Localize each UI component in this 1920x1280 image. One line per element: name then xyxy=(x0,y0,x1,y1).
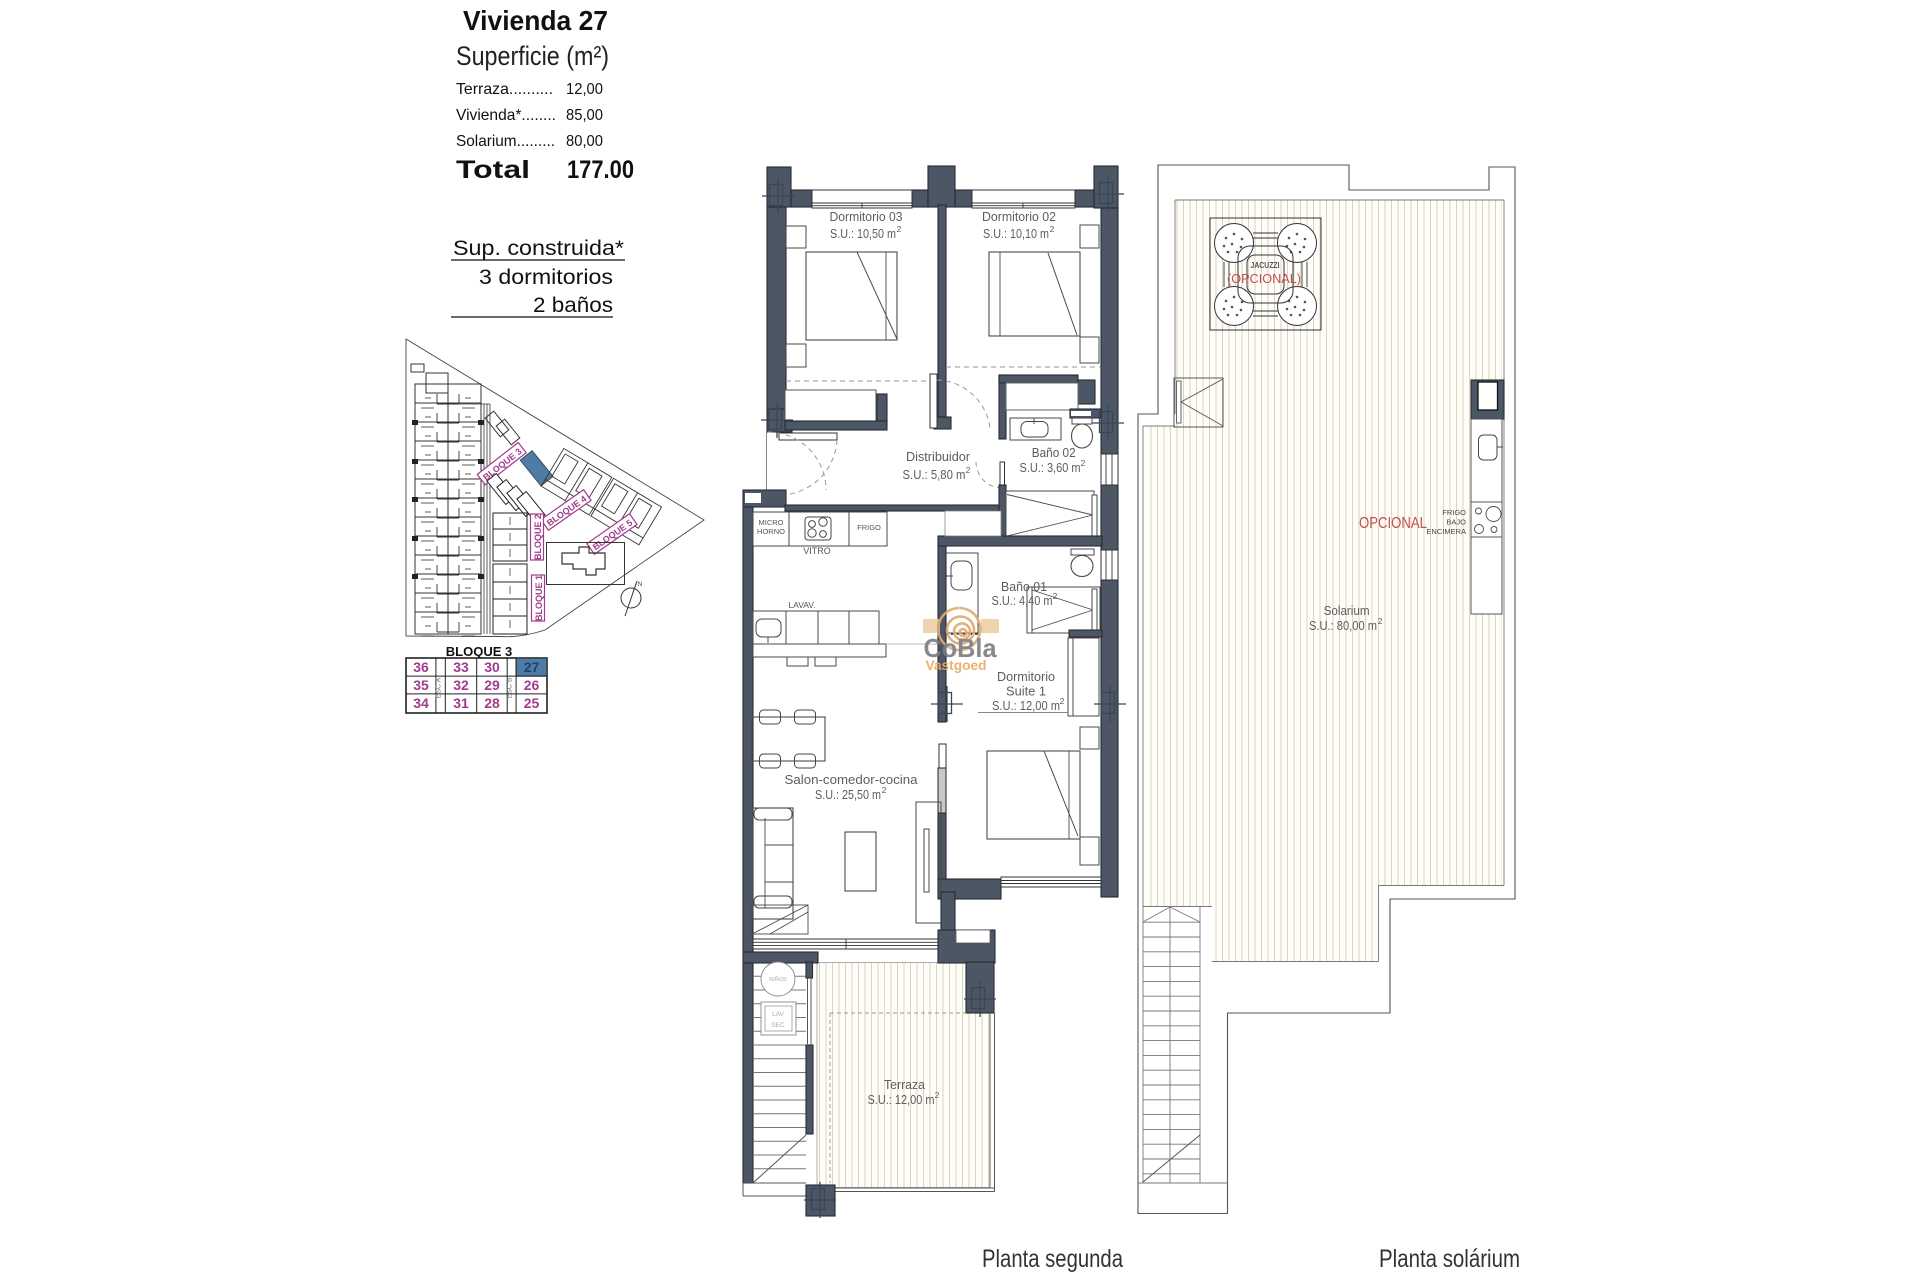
svg-text:ENCIMERA: ENCIMERA xyxy=(1426,527,1466,536)
svg-text:2 baños: 2 baños xyxy=(533,294,613,317)
svg-text:S.U.: 10,50 m: S.U.: 10,50 m xyxy=(830,227,896,241)
svg-text:Dormitorio 03: Dormitorio 03 xyxy=(830,210,903,224)
svg-text:32: 32 xyxy=(453,677,469,693)
svg-text:Salon-comedor-cocina: Salon-comedor-cocina xyxy=(785,773,918,787)
svg-text:Dormitorio: Dormitorio xyxy=(997,670,1055,684)
svg-text:30: 30 xyxy=(484,659,500,675)
svg-text:26: 26 xyxy=(524,677,540,693)
svg-text:ESC A: ESC A xyxy=(436,677,443,698)
svg-text:N: N xyxy=(638,582,642,588)
svg-text:Dormitorio 02: Dormitorio 02 xyxy=(982,210,1056,224)
svg-text:BAJO: BAJO xyxy=(1446,518,1466,527)
svg-text:2: 2 xyxy=(1053,591,1058,601)
svg-text:S.U.: 4,40 m: S.U.: 4,40 m xyxy=(992,594,1053,608)
svg-text:Sup. construida*: Sup. construida* xyxy=(453,237,624,260)
svg-text:S.U.: 3,60 m: S.U.: 3,60 m xyxy=(1020,461,1081,475)
svg-text:2: 2 xyxy=(1081,458,1086,468)
svg-text:LAV: LAV xyxy=(772,1011,784,1018)
svg-text:36: 36 xyxy=(413,659,429,675)
svg-text:3 dormitorios: 3 dormitorios xyxy=(479,266,613,289)
svg-text:29: 29 xyxy=(484,677,500,693)
svg-text:33: 33 xyxy=(453,659,469,675)
svg-text:SEC: SEC xyxy=(771,1022,785,1029)
svg-text:NIÑOS: NIÑOS xyxy=(769,976,787,983)
svg-text:ESC B: ESC B xyxy=(507,677,514,698)
svg-text:25: 25 xyxy=(524,695,540,711)
svg-text:2: 2 xyxy=(935,1090,940,1100)
svg-text:Vivienda*........: Vivienda*........ xyxy=(456,107,556,124)
svg-text:S.U.: 12,00 m: S.U.: 12,00 m xyxy=(868,1093,935,1107)
svg-text:(OPCIONAL): (OPCIONAL) xyxy=(1227,271,1301,286)
svg-text:VITRO: VITRO xyxy=(803,546,831,556)
svg-text:OPCIONAL: OPCIONAL xyxy=(1359,515,1427,532)
svg-text:34: 34 xyxy=(413,695,429,711)
svg-text:Planta solárium: Planta solárium xyxy=(1379,1245,1520,1273)
svg-text:LAVAV.: LAVAV. xyxy=(788,600,815,610)
svg-text:2: 2 xyxy=(882,785,887,795)
svg-text:177.00: 177.00 xyxy=(567,156,634,184)
svg-text:Distribuidor: Distribuidor xyxy=(906,450,970,464)
svg-text:Solarium.........: Solarium......... xyxy=(456,133,555,150)
svg-text:31: 31 xyxy=(453,695,469,711)
svg-text:Vivienda 27: Vivienda 27 xyxy=(463,5,608,36)
svg-text:Superficie (m²): Superficie (m²) xyxy=(456,41,609,71)
svg-text:S.U.: 12,00 m: S.U.: 12,00 m xyxy=(992,699,1060,713)
svg-text:27: 27 xyxy=(524,659,540,675)
svg-text:MICRO: MICRO xyxy=(759,518,784,527)
svg-text:2: 2 xyxy=(897,224,902,234)
svg-text:Baño 01: Baño 01 xyxy=(1001,580,1047,594)
svg-text:S.U.: 80,00 m: S.U.: 80,00 m xyxy=(1309,619,1377,633)
svg-text:HORNO: HORNO xyxy=(757,527,785,536)
svg-text:Terraza..........: Terraza.......... xyxy=(456,81,553,98)
svg-text:S.U.: 25,50 m: S.U.: 25,50 m xyxy=(815,788,881,802)
svg-text:Total: Total xyxy=(456,156,530,184)
svg-text:2: 2 xyxy=(1050,224,1055,234)
svg-text:85,00: 85,00 xyxy=(566,107,603,124)
svg-text:Terraza: Terraza xyxy=(884,1078,925,1092)
svg-text:JACUZZI: JACUZZI xyxy=(1251,261,1280,270)
svg-text:Baño 02: Baño 02 xyxy=(1032,446,1076,460)
svg-text:FRIGO: FRIGO xyxy=(1442,508,1466,517)
svg-text:FRIGO: FRIGO xyxy=(857,523,881,532)
svg-text:28: 28 xyxy=(484,695,500,711)
svg-text:S.U.: 5,80 m: S.U.: 5,80 m xyxy=(903,468,966,482)
svg-text:BLOQUE 3: BLOQUE 3 xyxy=(446,644,512,659)
svg-text:Solarium: Solarium xyxy=(1324,604,1370,618)
svg-text:Suite 1: Suite 1 xyxy=(1006,685,1046,699)
svg-text:Planta segunda: Planta segunda xyxy=(982,1245,1123,1273)
svg-text:BLOQUE 1: BLOQUE 1 xyxy=(534,575,544,621)
svg-text:80,00: 80,00 xyxy=(566,133,603,150)
svg-text:BLOQUE 2: BLOQUE 2 xyxy=(533,514,543,560)
svg-text:S.U.: 10,10 m: S.U.: 10,10 m xyxy=(983,227,1049,241)
svg-text:Vastgoed: Vastgoed xyxy=(926,657,987,673)
svg-text:2: 2 xyxy=(966,465,971,475)
svg-text:12,00: 12,00 xyxy=(566,81,603,98)
svg-text:35: 35 xyxy=(413,677,429,693)
svg-text:2: 2 xyxy=(1378,616,1383,626)
svg-text:2: 2 xyxy=(1060,696,1065,706)
